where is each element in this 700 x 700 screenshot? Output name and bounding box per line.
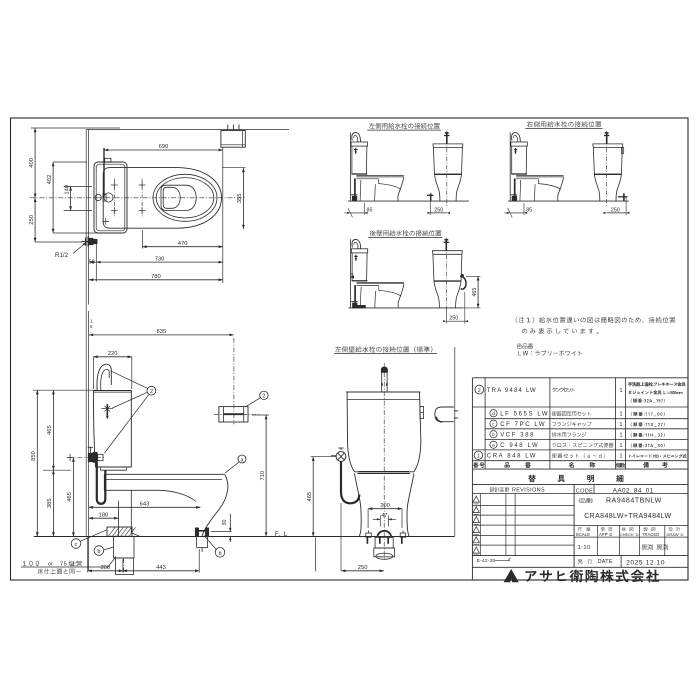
svg-text:465: 465 — [307, 492, 313, 502]
svg-text:VCF 388: VCF 388 — [500, 433, 535, 439]
svg-text:643: 643 — [140, 502, 150, 508]
svg-text:TRA 9484 LW: TRA 9484 LW — [487, 388, 537, 394]
svg-text:CF 7PC LW: CF 7PC LW — [500, 422, 546, 428]
svg-text:CRA 848 LW: CRA 848 LW — [487, 454, 537, 460]
svg-text:d: d — [492, 411, 495, 416]
svg-text:385: 385 — [47, 498, 53, 508]
svg-text:470: 470 — [178, 241, 188, 247]
svg-text:47: 47 — [382, 513, 388, 519]
svg-text:690: 690 — [159, 144, 169, 150]
svg-text:75: 75 — [60, 561, 67, 567]
svg-text:180: 180 — [99, 512, 109, 518]
svg-text:2: 2 — [262, 394, 265, 400]
svg-text:250: 250 — [358, 565, 368, 571]
svg-text:250: 250 — [449, 315, 458, 321]
svg-text:RA9484TBNLW: RA9484TBNLW — [606, 498, 662, 505]
svg-text:1: 1 — [619, 422, 622, 428]
svg-text:465: 465 — [47, 425, 53, 435]
svg-text:a: a — [492, 443, 495, 448]
svg-text:E-42-38: E-42-38 — [477, 558, 496, 564]
svg-text:465: 465 — [67, 492, 73, 502]
svg-text:220: 220 — [108, 351, 118, 357]
svg-text:CHECK' D: CHECK' D — [620, 532, 639, 537]
svg-text:1: 1 — [619, 454, 622, 460]
svg-text:730: 730 — [155, 256, 165, 262]
svg-text:CODE: CODE — [576, 488, 593, 494]
svg-text:1: 1 — [619, 443, 622, 449]
svg-text:or: or — [48, 561, 53, 567]
svg-text:F. L: F. L — [275, 531, 288, 538]
svg-text:DRAW' D: DRAW' D — [667, 532, 684, 537]
svg-text:200: 200 — [380, 503, 390, 509]
svg-text:1: 1 — [619, 433, 622, 439]
svg-text:1: 1 — [90, 319, 93, 324]
svg-text:780: 780 — [151, 274, 161, 280]
svg-text:1: 1 — [619, 412, 622, 418]
svg-text:465: 465 — [472, 288, 478, 297]
svg-text:CRA848LW+TRA9484LW: CRA848LW+TRA9484LW — [584, 513, 671, 520]
svg-text:b: b — [97, 549, 100, 555]
svg-text:1: 1 — [619, 388, 622, 394]
svg-text:TRACED: TRACED — [642, 532, 659, 537]
svg-text:402: 402 — [47, 175, 53, 185]
svg-text:APP' D: APP' D — [599, 532, 612, 537]
svg-text:DATE: DATE — [598, 559, 613, 565]
svg-text:710: 710 — [260, 471, 266, 481]
svg-text:400: 400 — [29, 158, 35, 168]
svg-text:250: 250 — [29, 215, 35, 225]
svg-text:c: c — [75, 542, 78, 548]
svg-text:AA02_84_01: AA02_84_01 — [613, 488, 654, 495]
svg-text:2: 2 — [478, 388, 481, 394]
svg-text:a: a — [241, 457, 244, 463]
svg-text:2025.12.10: 2025.12.10 — [626, 560, 665, 567]
svg-text:REVISIONS: REVISIONS — [512, 488, 545, 494]
svg-text:C 948 LW: C 948 LW — [500, 443, 539, 449]
svg-text:b: b — [218, 551, 221, 557]
svg-text:850: 850 — [31, 451, 37, 461]
svg-text:b: b — [492, 432, 495, 437]
svg-text:2: 2 — [150, 389, 153, 395]
svg-text:SCALE: SCALE — [576, 532, 590, 537]
svg-text:30: 30 — [222, 520, 228, 526]
svg-text:355: 355 — [237, 194, 243, 204]
svg-text:443: 443 — [156, 565, 166, 571]
svg-text:835: 835 — [157, 329, 167, 335]
svg-text:R1/2: R1/2 — [55, 252, 69, 259]
svg-text:LF 565S LW: LF 565S LW — [500, 412, 549, 418]
svg-text:1: 1 — [477, 454, 480, 460]
svg-text:1:10: 1:10 — [578, 545, 591, 551]
